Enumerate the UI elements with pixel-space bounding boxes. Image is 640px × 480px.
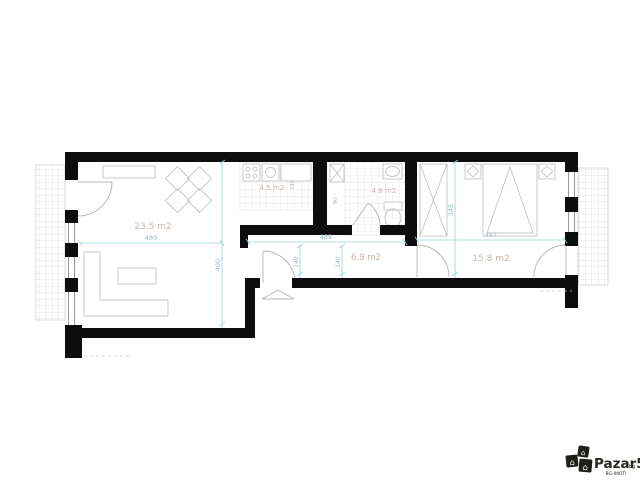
wall-corridor-bottom <box>292 278 578 288</box>
watermark-logo: ⌂ ⌂ ⌂ <box>565 445 592 473</box>
dim-bedroom-width: 457 <box>485 231 497 239</box>
label-hallway: 6.9 m2 <box>351 253 381 263</box>
coffee-table <box>118 268 156 284</box>
label-kitchen: 4.5 m2 <box>260 184 285 192</box>
ventilation-shaft <box>330 164 344 182</box>
balcony-door-bedroom <box>534 245 566 277</box>
watermark-suffix: bg <box>629 464 635 470</box>
label-bathroom: 4.8 m2 <box>372 187 397 195</box>
wall-cabinet <box>103 166 155 178</box>
floor-plan-canvas: 480 400 488 140 140 457 345 180 90 23.5 … <box>0 0 640 480</box>
balcony-door-living <box>78 182 112 216</box>
floor-plan-page: 480 400 488 140 140 457 345 180 90 23.5 … <box>0 0 640 480</box>
kitchen-counter <box>281 164 311 181</box>
dim-living-depth: 400 <box>214 259 222 271</box>
bedroom-door <box>417 245 449 277</box>
stove <box>243 164 260 181</box>
wall-top <box>70 152 578 162</box>
entrance-door <box>262 251 295 299</box>
wall-bath-bedroom <box>405 162 417 246</box>
wall-living-bottom <box>70 328 255 338</box>
dim-hall-opening-left: 140 <box>293 256 300 268</box>
house-icon: ⌂ <box>569 458 575 467</box>
watermark: ⌂ ⌂ ⌂ Pazar5 bg BG-IMOTI <box>565 445 640 477</box>
nightstand-left <box>465 164 481 179</box>
dim-kitchen-side: 180 <box>290 180 296 190</box>
nightstand-right <box>539 164 555 179</box>
watermark-tagline: BG-IMOTI <box>606 471 627 477</box>
dim-hall-width: 488 <box>320 233 332 241</box>
label-living-room: 23.5 m2 <box>134 222 171 232</box>
label-bedroom: 15.8 m2 <box>472 254 509 264</box>
wardrobe <box>420 164 447 236</box>
bed <box>483 164 537 236</box>
dim-bedroom-depth: 345 <box>447 204 455 216</box>
house-icon: ⌂ <box>582 463 588 473</box>
balcony-right <box>578 168 608 285</box>
wash-basin <box>383 164 402 179</box>
dim-living-width: 480 <box>145 234 157 242</box>
dim-hall-opening-right: 140 <box>335 256 342 268</box>
dining-table-set <box>165 166 211 212</box>
dim-shaft-side: 90 <box>333 198 339 204</box>
balcony-left <box>36 165 65 320</box>
entrance-step <box>262 290 294 299</box>
kitchen-sink <box>262 164 279 181</box>
wall-kitchen-bath <box>313 162 327 235</box>
